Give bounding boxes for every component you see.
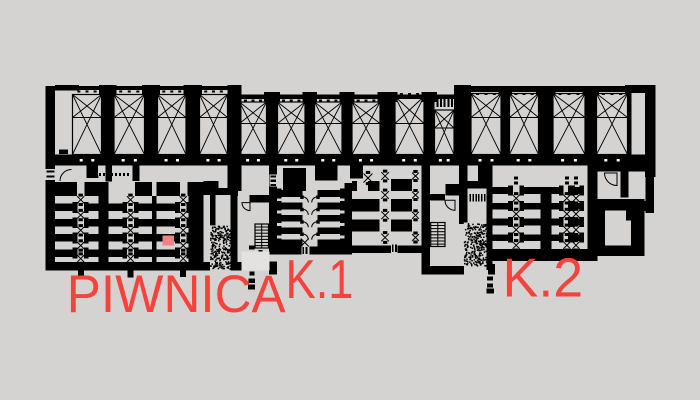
svg-text:PIWNICA: PIWNICA bbox=[67, 264, 286, 323]
svg-text:K.2: K.2 bbox=[503, 248, 584, 309]
svg-text:K.1: K.1 bbox=[286, 248, 354, 310]
